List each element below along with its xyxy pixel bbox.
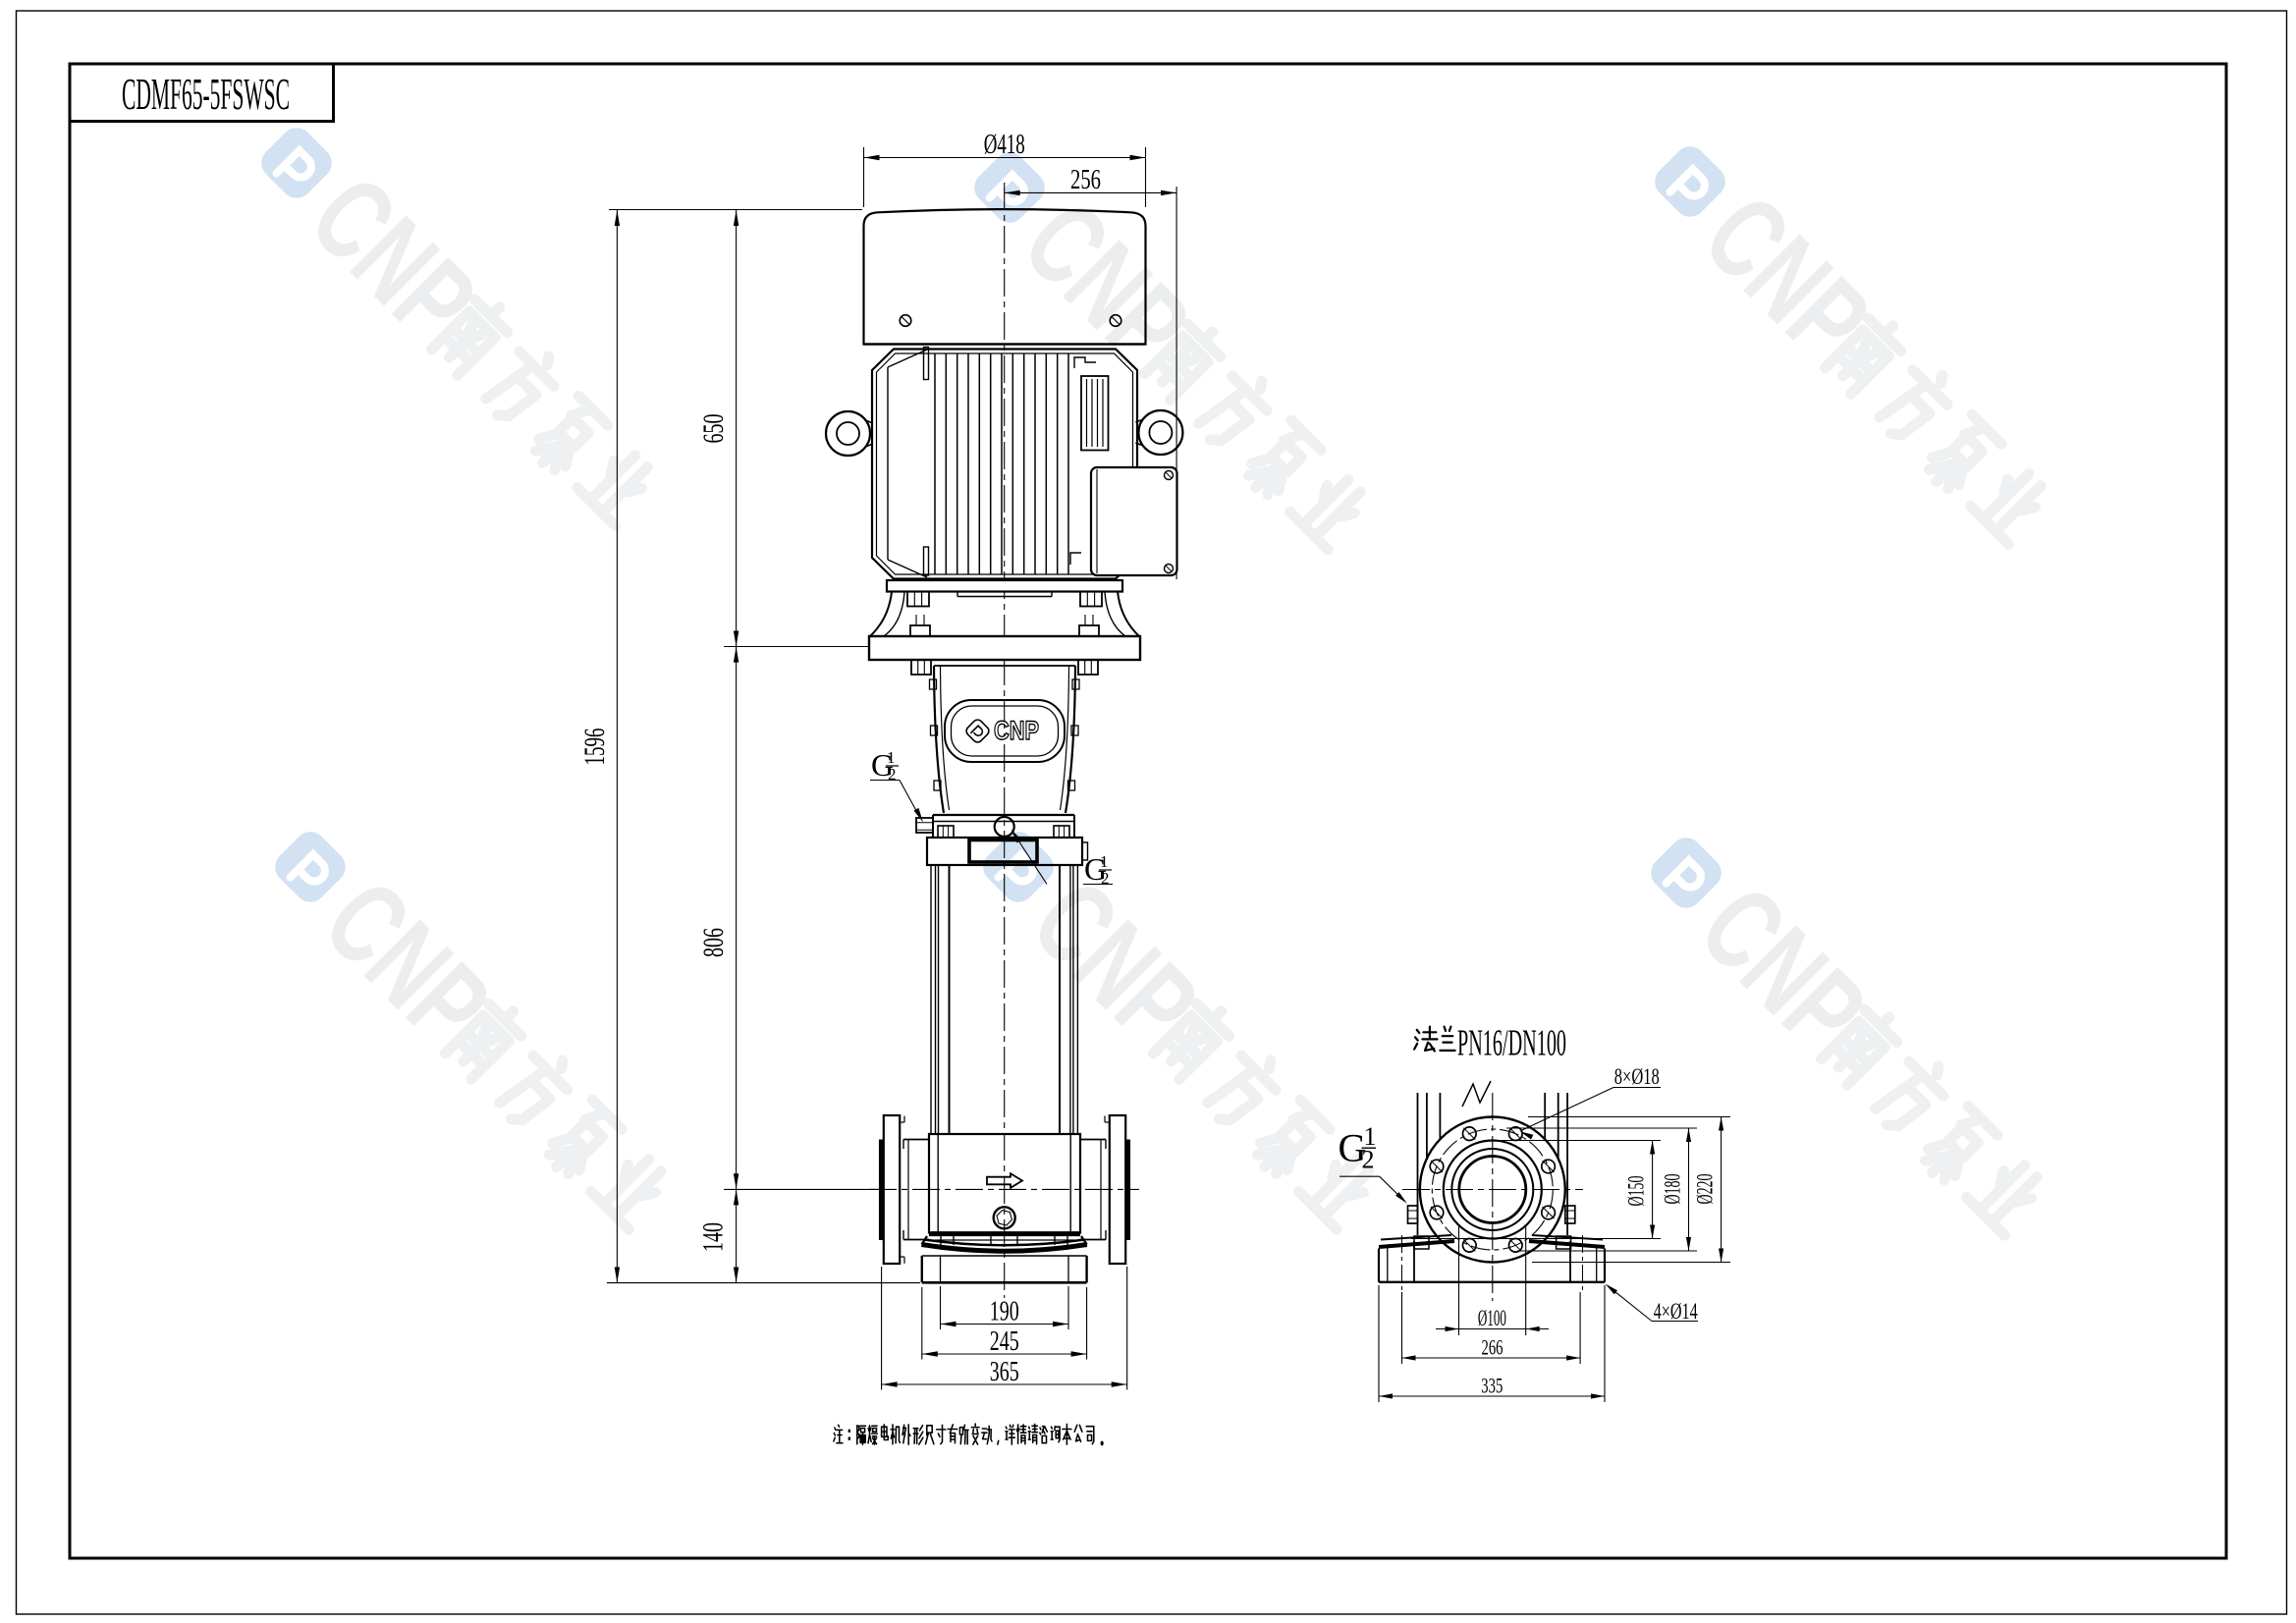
svg-text:Ø100: Ø100 <box>1478 1306 1506 1330</box>
svg-text:190: 190 <box>990 1296 1019 1327</box>
svg-text:266: 266 <box>1482 1335 1503 1360</box>
svg-text:650: 650 <box>697 414 730 444</box>
svg-text:CNP: CNP <box>994 716 1039 745</box>
svg-text:245: 245 <box>990 1325 1019 1357</box>
svg-text:365: 365 <box>990 1356 1019 1387</box>
svg-text:Ø180: Ø180 <box>1660 1174 1684 1205</box>
svg-text:140: 140 <box>696 1222 729 1252</box>
svg-text:Ø220: Ø220 <box>1693 1174 1718 1205</box>
svg-text:4×Ø14: 4×Ø14 <box>1654 1299 1698 1324</box>
svg-text:Ø150: Ø150 <box>1624 1176 1649 1207</box>
svg-text:2: 2 <box>1101 869 1110 888</box>
svg-text:1596: 1596 <box>578 729 611 766</box>
svg-text:2: 2 <box>888 765 897 784</box>
svg-text:PN16/DN100: PN16/DN100 <box>1457 1023 1566 1064</box>
svg-text:335: 335 <box>1481 1374 1503 1398</box>
svg-text:2: 2 <box>1362 1146 1375 1174</box>
svg-text:Ø418: Ø418 <box>984 129 1025 160</box>
svg-text:256: 256 <box>1070 164 1101 195</box>
svg-text:806: 806 <box>697 928 730 957</box>
svg-text:CDMF65-5FSWSC: CDMF65-5FSWSC <box>122 69 290 119</box>
svg-text:8×Ø18: 8×Ø18 <box>1614 1064 1660 1089</box>
